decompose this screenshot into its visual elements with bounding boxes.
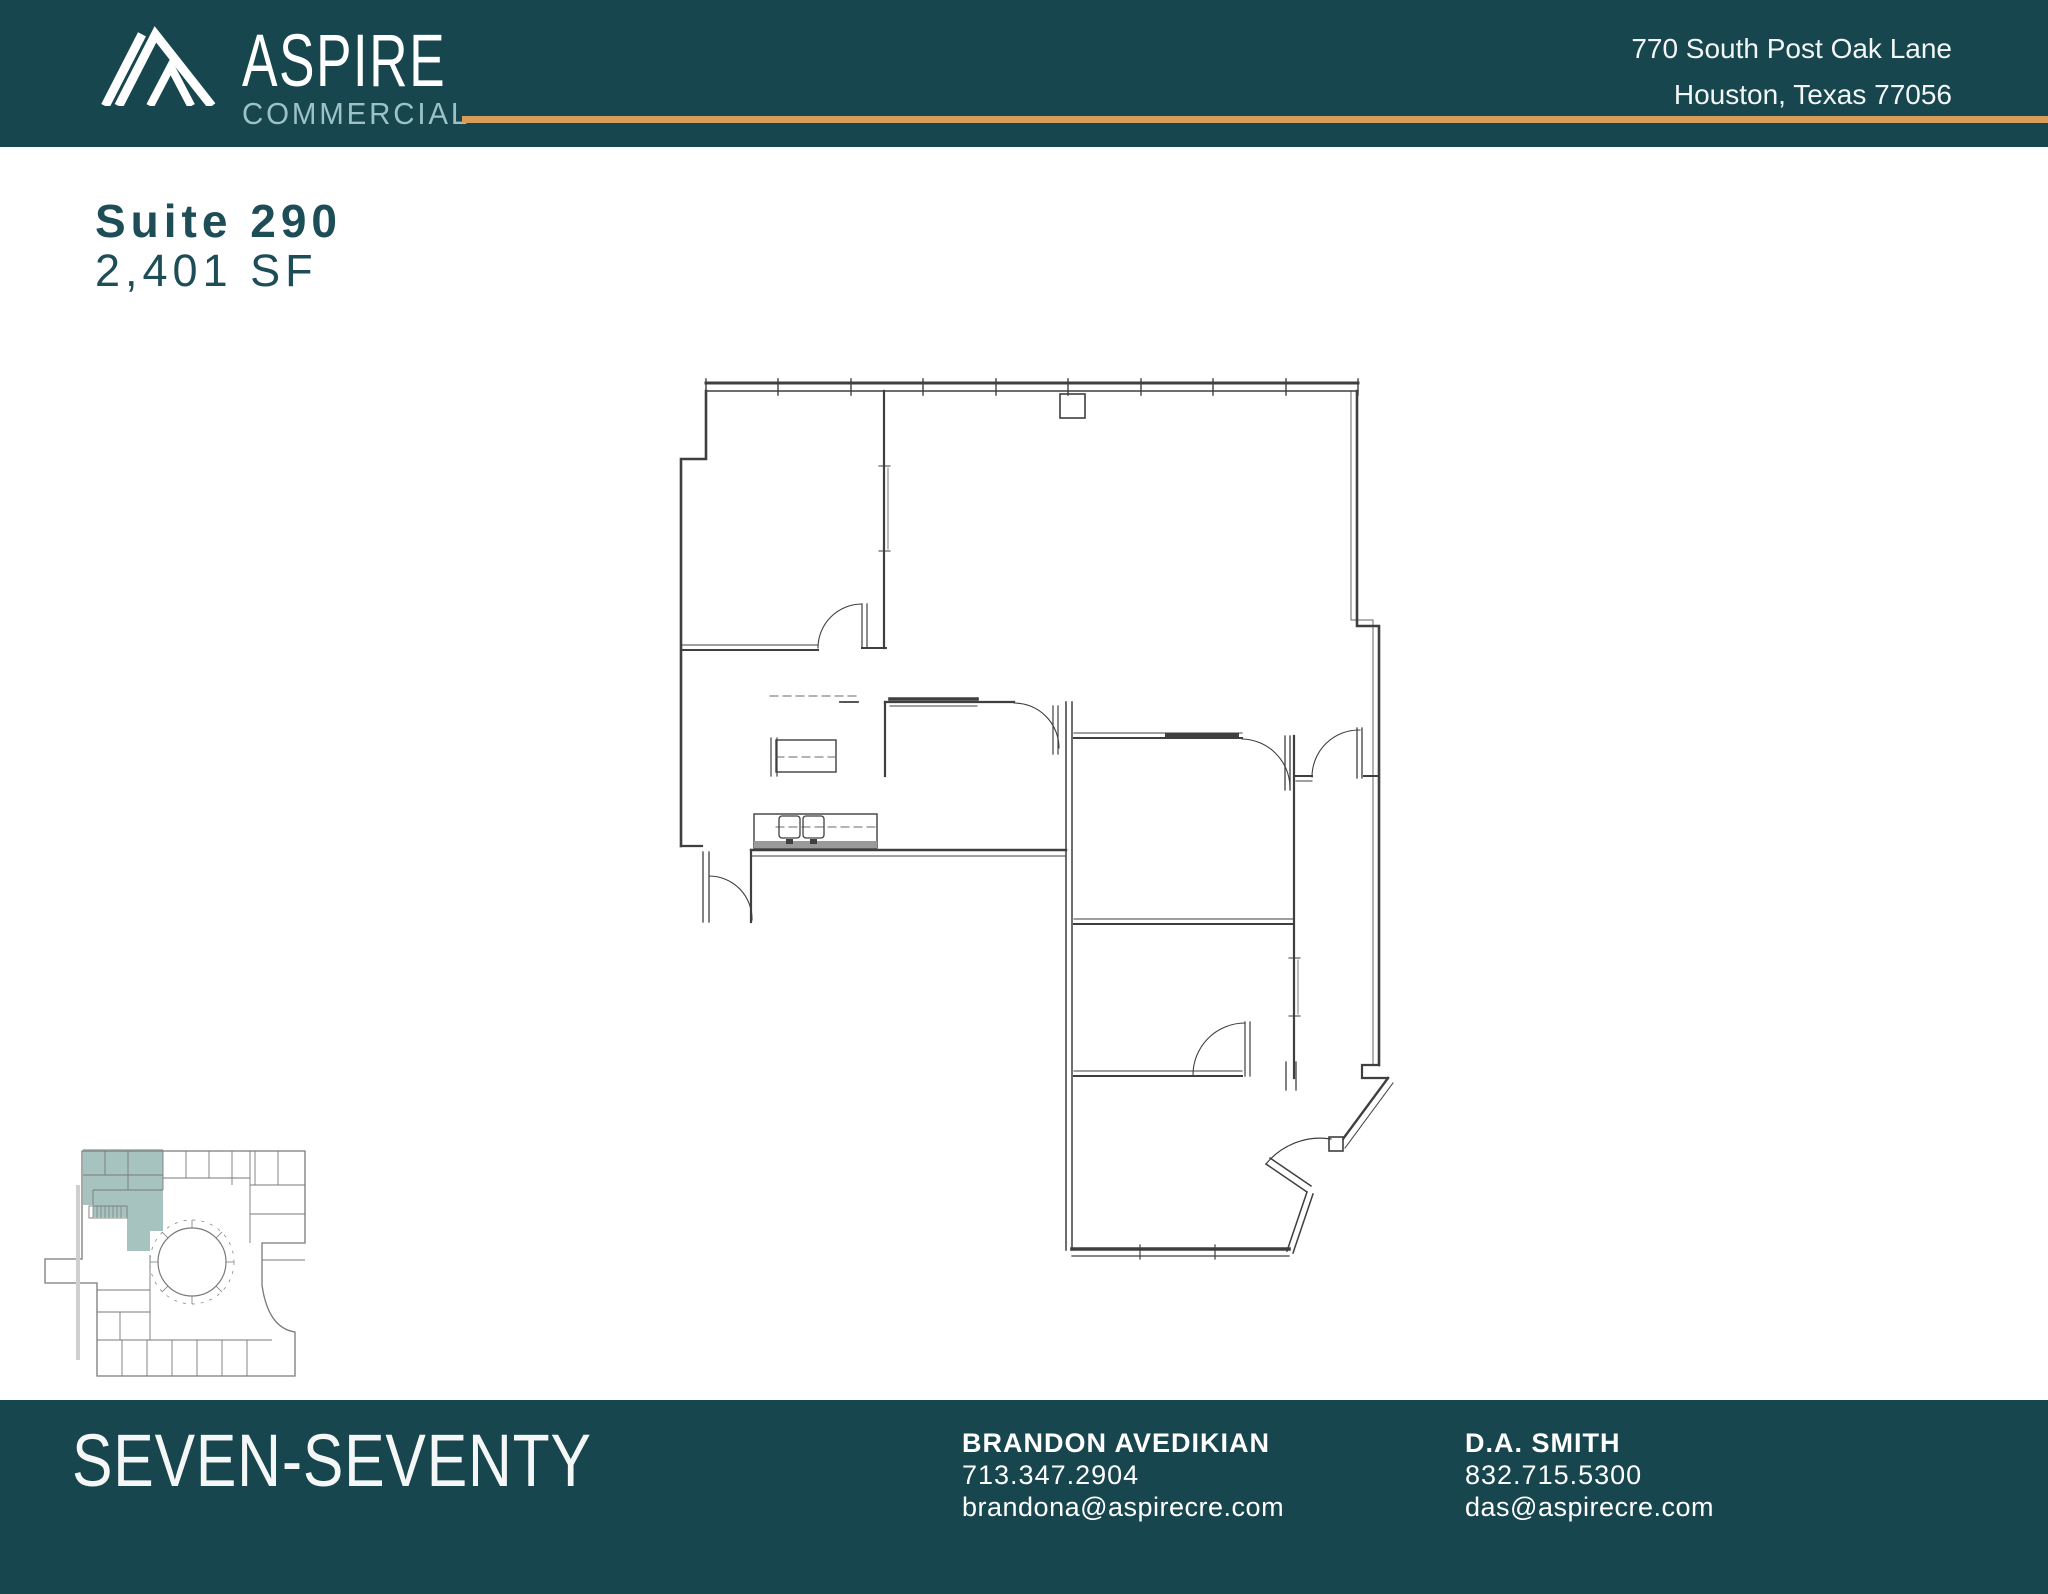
column bbox=[1060, 394, 1085, 418]
window-wall-bottom bbox=[1072, 1245, 1289, 1259]
brand-subname: COMMERCIAL bbox=[242, 98, 470, 129]
brand-name: ASPIRE bbox=[242, 24, 446, 98]
suite-floor-plan bbox=[681, 379, 1393, 1259]
window-wall-top bbox=[706, 379, 1358, 395]
contact-name: BRANDON AVEDIKIAN bbox=[962, 1428, 1284, 1459]
address-line-2: Houston, Texas 77056 bbox=[1631, 72, 1952, 118]
suite-area: 2,401 SF bbox=[95, 247, 342, 295]
suite-highlight bbox=[83, 1149, 163, 1251]
flyer-page: ASPIRE COMMERCIAL 770 South Post Oak Lan… bbox=[0, 0, 2048, 1594]
entry-door-arc bbox=[1266, 1138, 1331, 1164]
building-name: SEVEN-SEVENTY bbox=[72, 1424, 592, 1498]
office-top-left bbox=[681, 391, 890, 650]
gold-divider bbox=[462, 116, 2048, 123]
contact-name: D.A. SMITH bbox=[1465, 1428, 1714, 1459]
suite-title-block: Suite 290 2,401 SF bbox=[95, 196, 342, 295]
contact-dasmith: D.A. SMITH 832.715.5300 das@aspirecre.co… bbox=[1465, 1428, 1714, 1524]
side-entry-door bbox=[681, 846, 752, 922]
key-plan bbox=[45, 1149, 305, 1376]
kitchen bbox=[754, 696, 1059, 848]
address-line-1: 770 South Post Oak Lane bbox=[1631, 26, 1952, 72]
contact-email: brandona@aspirecre.com bbox=[962, 1491, 1284, 1524]
contact-brandon: BRANDON AVEDIKIAN 713.347.2904 brandona@… bbox=[962, 1428, 1284, 1524]
contact-phone: 832.715.5300 bbox=[1465, 1459, 1714, 1491]
contact-phone: 713.347.2904 bbox=[962, 1459, 1284, 1491]
aspire-logo: ASPIRE COMMERCIAL bbox=[100, 20, 525, 129]
suite-title: Suite 290 bbox=[95, 196, 342, 246]
contact-email: das@aspirecre.com bbox=[1465, 1491, 1714, 1524]
double-sink-icon bbox=[779, 816, 824, 844]
property-address: 770 South Post Oak Lane Houston, Texas 7… bbox=[1631, 26, 1952, 118]
aspire-logo-icon bbox=[100, 20, 218, 106]
offices-right bbox=[1074, 728, 1379, 1090]
header: ASPIRE COMMERCIAL 770 South Post Oak Lan… bbox=[0, 0, 2048, 147]
